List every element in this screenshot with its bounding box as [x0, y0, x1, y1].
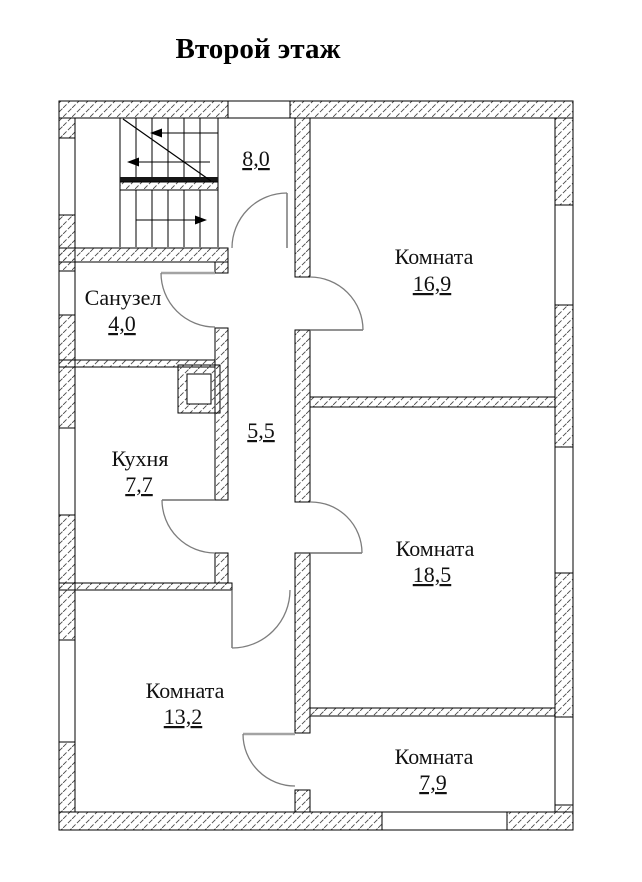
floor-plan-page: Второй этаж: [0, 0, 642, 882]
wall-hallway-left: [215, 262, 228, 273]
door-stairhall-hallway: [232, 193, 287, 248]
wall-bottom-left: [59, 812, 382, 830]
door-room169: [310, 277, 363, 330]
room169-name-label: Комната: [395, 244, 474, 269]
page-title: Второй этаж: [176, 33, 341, 65]
wall-right-pier: [555, 573, 573, 717]
wall-hallway-right: [295, 553, 310, 733]
kitchen-area-label: 7,7: [125, 472, 153, 497]
window-right-room185: [555, 447, 573, 573]
wall-left-pier: [59, 118, 75, 138]
wall-room185-room79: [310, 708, 555, 716]
wall-left-pier: [59, 515, 75, 640]
window-top: [228, 101, 290, 118]
wall-stairhall-bathroom: [59, 248, 228, 262]
bathroom-area-label: 4,0: [108, 311, 136, 336]
wall-left-pier: [59, 215, 75, 271]
room-labels: 8,0 Санузел 4,0 Кухня 7,7 5,5 Комната 16…: [85, 146, 475, 795]
door-kitchen: [162, 500, 215, 553]
wall-left-pier: [59, 742, 75, 812]
hallway-area-label: 5,5: [247, 418, 275, 443]
door-room185: [310, 502, 362, 553]
wall-bottom-right: [507, 812, 573, 830]
stair-direction-arrow-up: [127, 129, 218, 167]
window-right-room79: [555, 717, 573, 805]
stair-direction-arrow-down: [136, 216, 207, 225]
window-bottom: [382, 812, 507, 830]
stairhall-area-label: 8,0: [242, 146, 270, 171]
wall-top-right: [290, 101, 573, 118]
wall-hallway-right: [295, 118, 310, 277]
window-right-room169: [555, 205, 573, 305]
room185-name-label: Комната: [396, 536, 475, 561]
wall-right-pier: [555, 305, 573, 447]
room185-area-label: 18,5: [413, 562, 452, 587]
window-left-kitchen: [59, 428, 75, 515]
floor-plan-canvas: Второй этаж: [0, 0, 642, 882]
wall-kitchen-room132: [59, 583, 232, 590]
room132-name-label: Комната: [146, 678, 225, 703]
window-left-room132: [59, 640, 75, 742]
wall-hallway-right: [295, 790, 310, 812]
door-room79: [243, 734, 295, 786]
wall-left-pier: [59, 315, 75, 428]
window-left-stairhall: [59, 138, 75, 215]
stair-landing: [120, 182, 218, 190]
room79-area-label: 7,9: [419, 770, 447, 795]
window-left-bathroom: [59, 271, 75, 315]
room79-name-label: Комната: [395, 744, 474, 769]
wall-hallway-left: [215, 553, 228, 583]
door-room132: [232, 590, 290, 648]
room169-area-label: 16,9: [413, 271, 452, 296]
bathroom-name-label: Санузел: [85, 285, 162, 310]
wall-top-left: [59, 101, 228, 118]
duct-shaft-opening: [187, 374, 211, 404]
kitchen-name-label: Кухня: [112, 446, 169, 471]
wall-right-pier: [555, 118, 573, 205]
wall-hallway-left: [215, 328, 228, 500]
wall-right-pier: [555, 805, 573, 812]
door-bathroom: [161, 273, 215, 327]
stair-landing-edge: [120, 177, 218, 182]
room132-area-label: 13,2: [164, 704, 203, 729]
wall-hallway-right: [295, 330, 310, 502]
wall-room169-room185: [310, 397, 555, 407]
staircase: [120, 118, 218, 247]
